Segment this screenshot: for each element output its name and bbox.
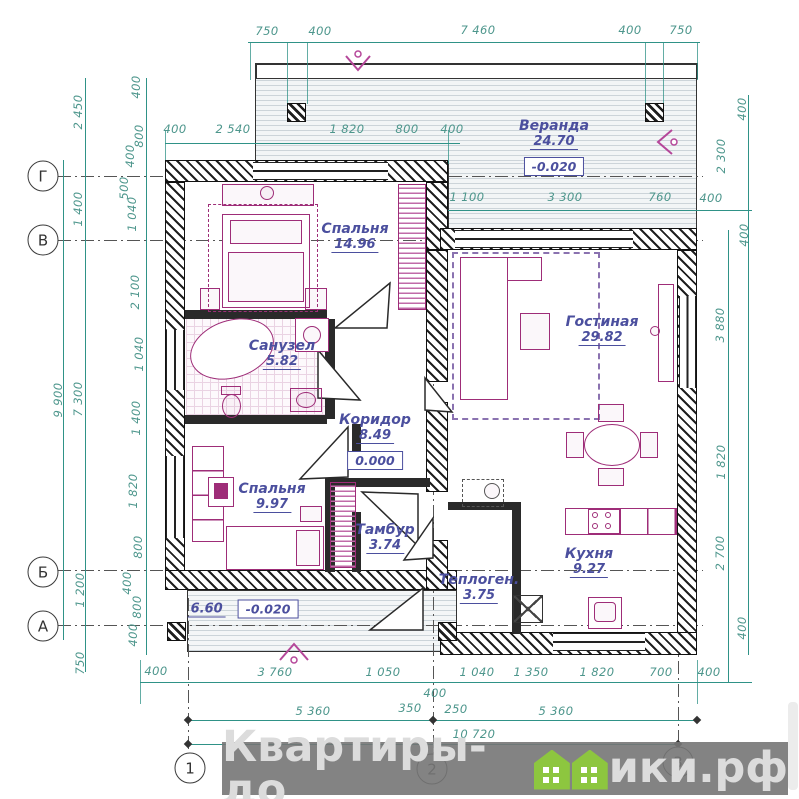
door-swing — [318, 350, 360, 400]
coffee-table — [520, 313, 550, 350]
wall — [165, 570, 457, 590]
dimension-line — [188, 720, 697, 721]
wall — [426, 250, 448, 382]
house-icon — [572, 750, 608, 790]
dimension-label: 5 360 — [296, 704, 331, 718]
house-windows — [543, 767, 549, 773]
stool-seat — [214, 483, 228, 499]
dimension-label: 3 300 — [548, 190, 583, 204]
sofa-body — [460, 257, 508, 400]
dimension-label: 1 200 — [73, 573, 87, 608]
dimension-line — [248, 42, 700, 43]
watermark-text-prefix: Квартиры-до — [222, 726, 533, 799]
window — [553, 633, 645, 651]
room-area: 9.97 — [238, 497, 305, 513]
room-area: 29.82 — [566, 330, 639, 346]
chain-arrow — [184, 740, 192, 748]
extension-line — [250, 42, 251, 80]
dimension-label: 400 — [120, 571, 134, 594]
room-name: Гостиная — [566, 315, 639, 330]
stove-burner — [605, 512, 611, 518]
dimension-label: 800 — [131, 535, 145, 558]
room-label: Веранда24.70-0.020 — [519, 119, 589, 176]
room-label: Гостиная29.82 — [566, 315, 639, 346]
scrollbar-strip[interactable] — [788, 702, 798, 790]
room-name: Санузел — [249, 339, 315, 354]
house-icon — [534, 750, 570, 790]
room-label: Коридор8.490.000 — [339, 413, 411, 470]
dimension-label: 800 — [130, 595, 144, 618]
dimension-label: 760 — [648, 190, 671, 204]
dimension-label: 7 460 — [461, 23, 496, 37]
veranda-roof-edge — [255, 63, 257, 79]
room-area: 14.96 — [321, 237, 388, 253]
dimension-label: 1 040 — [125, 197, 139, 232]
column-post — [167, 622, 186, 641]
chain-arrow — [184, 716, 192, 724]
room-area: 5.82 — [249, 354, 315, 370]
column-post — [438, 622, 457, 641]
dimension-label: 9 900 — [51, 383, 65, 418]
veranda-floor — [255, 78, 697, 162]
room-label: Теплоген.3.75 — [439, 573, 519, 604]
dimension-line — [435, 210, 752, 211]
dimension-label: 1 100 — [450, 190, 485, 204]
entrance-arrow — [652, 128, 678, 156]
dimension-label: 400 — [618, 23, 641, 37]
watermark-text-suffix: ики.рф — [609, 747, 788, 790]
extension-line — [140, 660, 141, 704]
dimension-label: 1 040 — [460, 665, 495, 679]
kitchen-sink-basin — [594, 602, 616, 622]
column-post — [287, 103, 306, 122]
room-area: 9.27 — [565, 562, 613, 578]
dimension-label: 3 880 — [713, 308, 727, 343]
dimension-label: 1 400 — [71, 192, 85, 227]
dimension-label: 1 400 — [129, 401, 143, 436]
entrance-arrow — [344, 50, 372, 74]
chair — [598, 404, 624, 422]
bed-blanket — [228, 252, 304, 302]
axis-marker: В — [28, 225, 59, 256]
room-name: Кухня — [565, 547, 613, 562]
dimension-label: 400 — [144, 664, 167, 678]
room-label: Кухня9.27 — [565, 547, 613, 578]
dimension-label: 5 360 — [539, 704, 574, 718]
room-name: Веранда — [519, 119, 589, 134]
nightstand — [200, 288, 220, 310]
dresser-knob — [260, 186, 274, 200]
dimension-label: 400 — [735, 616, 749, 639]
extension-line — [697, 42, 698, 80]
dimension-label: 400 — [163, 122, 186, 136]
dimension-line — [146, 78, 147, 655]
level-mark: -0.020 — [524, 157, 585, 176]
window — [253, 162, 388, 180]
tv-knob — [650, 326, 660, 336]
dimension-label: 250 — [444, 702, 467, 716]
dimension-label: 1 820 — [714, 445, 728, 480]
axis-marker: 1 — [175, 753, 206, 784]
entrance-arrow — [278, 640, 310, 664]
dimension-label: 7 300 — [71, 382, 85, 417]
room-name: Тамбур — [355, 523, 414, 538]
room-label: Санузел5.82 — [249, 339, 315, 370]
axis-marker: Б — [28, 557, 59, 588]
room-area: 8.49 — [339, 428, 411, 444]
dimension-label: 400 — [737, 223, 751, 246]
extension-line — [645, 42, 646, 104]
chair — [640, 432, 658, 458]
tv-stand — [658, 284, 674, 382]
veranda-roof-edge — [255, 63, 697, 65]
dimension-label: 400 — [129, 75, 143, 98]
bed-pillow — [296, 530, 320, 566]
toilet-bowl — [222, 394, 241, 418]
stove-burner — [592, 523, 598, 529]
extension-line — [307, 42, 308, 104]
dimension-label: 750 — [669, 23, 692, 37]
extension-line — [663, 42, 664, 104]
window — [166, 330, 184, 390]
room-name: Спальня — [238, 482, 305, 497]
dimension-label: 1 820 — [330, 122, 365, 136]
room-label: Спальня14.96 — [321, 222, 388, 253]
dimension-label: 350 — [398, 701, 421, 715]
dimension-label: 400 — [699, 191, 722, 205]
dimension-label: 2 100 — [128, 275, 142, 310]
dimension-label: 750 — [255, 24, 278, 38]
boiler-dial — [484, 483, 500, 499]
window — [679, 296, 696, 388]
level-mark: -0.020 — [238, 600, 299, 619]
axis-line-1 — [188, 598, 189, 756]
stove-burner — [592, 512, 598, 518]
column-post — [645, 103, 664, 122]
chair — [566, 432, 584, 458]
dimension-label: 2 300 — [714, 139, 728, 174]
room-name: Спальня — [321, 222, 388, 237]
dimension-label: 1 050 — [366, 665, 401, 679]
dimension-label: 2 450 — [71, 95, 85, 130]
door-swing — [335, 283, 390, 328]
partition — [185, 415, 327, 424]
dimension-label: 400 — [440, 122, 463, 136]
chair — [598, 468, 624, 486]
level-mark: 0.000 — [347, 451, 403, 470]
dimension-line — [748, 95, 749, 655]
nightstand — [305, 288, 327, 310]
axis-marker: А — [28, 611, 59, 642]
dimension-label: 800 — [395, 122, 418, 136]
dimension-label: 400 — [123, 144, 137, 167]
dimension-label: 400 — [126, 623, 140, 646]
kitchen-counter — [565, 508, 677, 535]
dimension-label: 1 040 — [132, 337, 146, 372]
dimension-line — [140, 682, 752, 683]
dimension-label: 3 760 — [258, 665, 293, 679]
dimension-label: 750 — [73, 651, 87, 674]
dimension-label: 1 820 — [126, 474, 140, 509]
bed-pillow — [230, 220, 302, 244]
floor-plan-canvas: 7504007 4604007504002 5401 8208004001 10… — [0, 0, 799, 799]
dimension-label: 400 — [308, 24, 331, 38]
room-area: 3.74 — [355, 538, 414, 554]
extension-line — [287, 42, 288, 104]
axis-marker: Г — [28, 161, 59, 192]
dining-table — [584, 424, 640, 466]
room-name: Теплоген. — [439, 573, 519, 588]
room-name: Коридор — [339, 413, 411, 428]
dimension-label: 400 — [423, 686, 446, 700]
room-area: 24.70 — [519, 134, 589, 150]
dimension-label: 1 820 — [580, 665, 615, 679]
wardrobe — [398, 184, 426, 310]
dimension-label: 2 700 — [713, 536, 727, 571]
window — [455, 230, 633, 248]
stove-burner — [605, 523, 611, 529]
door-swing — [370, 588, 423, 630]
room-area: 3.75 — [439, 588, 519, 604]
closet — [330, 482, 356, 568]
dimension-label: 400 — [697, 665, 720, 679]
window — [166, 456, 184, 538]
dimension-label: 400 — [735, 97, 749, 120]
dimension-line — [728, 230, 729, 682]
room-label: Спальня9.97 — [238, 482, 305, 513]
door-swing — [425, 378, 452, 412]
sink-basin — [296, 392, 316, 408]
dimension-label: 1 350 — [514, 665, 549, 679]
dimension-label: 2 540 — [216, 122, 251, 136]
room-area: 6.60 — [188, 601, 226, 617]
dimension-label: 700 — [649, 665, 672, 679]
room-label: 6.60-0.020 — [188, 600, 299, 619]
dimension-line — [165, 143, 460, 144]
watermark: Квартиры-до ики.рф — [222, 742, 788, 795]
room-label: Тамбур3.74 — [355, 523, 414, 554]
house-windows — [581, 767, 587, 773]
chain-arrow — [693, 716, 701, 724]
